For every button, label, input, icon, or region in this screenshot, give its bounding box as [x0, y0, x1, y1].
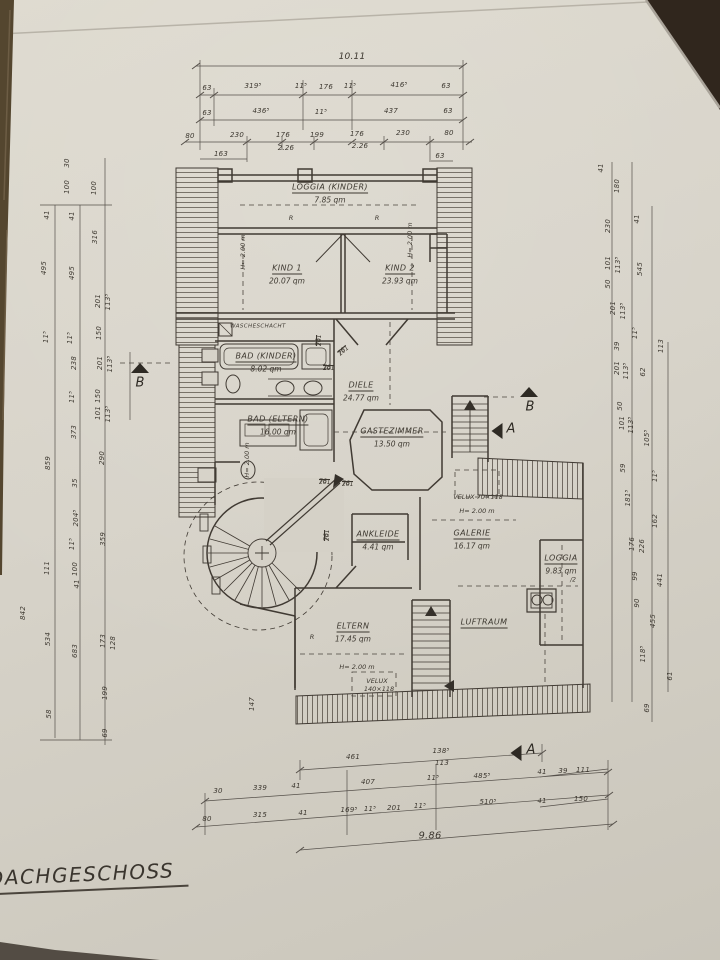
- dim-label: 534: [44, 632, 52, 646]
- dim-label: 201: [609, 301, 617, 315]
- screenshot-root: { "title": {"label": "DACHGESCHOSS"}, "p…: [0, 0, 720, 960]
- dim-label: 545: [636, 262, 644, 276]
- room-area: 8.02 qm: [250, 365, 281, 374]
- dim-label: 63: [441, 82, 450, 90]
- dim-label: 30: [213, 787, 222, 795]
- section-marker-label: A: [507, 422, 516, 437]
- dim-label: 407: [361, 778, 375, 786]
- annotation: H= 2.00 m: [239, 234, 247, 269]
- dim-label: 199: [101, 686, 109, 700]
- dim-label: 201: [387, 804, 401, 812]
- dim-label: 10.11: [339, 52, 366, 62]
- room-name: ANKLEIDE: [357, 530, 400, 541]
- dim-label: 11⁵: [651, 470, 659, 482]
- dim-label: 113⁵: [627, 417, 635, 434]
- dim-label: 319⁵: [245, 82, 262, 90]
- dim-label: 359: [99, 532, 107, 546]
- dim-label: 437: [384, 107, 398, 115]
- dim-label: 150: [95, 326, 103, 340]
- dim-label: 683: [71, 644, 79, 658]
- section-marker-arrow: [492, 423, 503, 439]
- dim-label: 41: [298, 809, 307, 817]
- room-name: BAD (KINDER): [235, 352, 296, 363]
- dim-label: 63: [202, 84, 211, 92]
- dim-label: 39: [613, 341, 621, 350]
- dim-label: 113: [435, 759, 449, 767]
- dim-label: 163: [214, 150, 228, 158]
- dim-label: 111: [43, 561, 51, 575]
- dim-label: 11⁵: [631, 327, 639, 339]
- dim-label: 2.26: [352, 142, 368, 150]
- dim-label: 101: [94, 406, 102, 420]
- dim-label: 101: [604, 256, 612, 270]
- dim-label: 11⁵: [315, 108, 327, 116]
- room-area: 20.07 qm: [269, 277, 305, 286]
- dim-label: 315: [253, 811, 267, 819]
- room-area: 9.83 qm: [545, 567, 576, 576]
- dim-label: 118⁵: [639, 646, 647, 663]
- dim-label: 113: [657, 339, 665, 353]
- dim-label: 105⁵: [643, 430, 651, 447]
- annotation: R: [310, 633, 315, 641]
- dim-label: 859: [44, 456, 52, 470]
- dim-label: 80: [202, 815, 211, 823]
- room-area: 23.93 qm: [382, 277, 418, 286]
- room-name: ELTERN: [337, 622, 370, 633]
- dim-label: 199: [310, 131, 324, 139]
- room-name: LOGGIA (KINDER): [292, 183, 368, 194]
- room-area: 7.85 qm: [314, 196, 345, 205]
- dim-label: 11⁵: [295, 82, 307, 90]
- dim-label: 181⁵: [624, 490, 632, 507]
- dim-label: 169⁵: [341, 806, 358, 814]
- dim-label: 176: [628, 537, 636, 551]
- dim-label: 11⁵: [414, 802, 426, 810]
- dim-label: 842: [19, 606, 27, 620]
- dim-label: 111: [576, 766, 590, 774]
- room-name: LUFTRAUM: [461, 618, 508, 629]
- annotation: H= 2.00 m: [243, 442, 251, 477]
- dim-label: 201: [613, 361, 621, 375]
- room-name: GALERIE: [454, 529, 491, 540]
- dim-label: 41: [291, 782, 300, 790]
- dim-label: 39: [558, 767, 567, 775]
- dim-label: 316: [91, 230, 99, 244]
- room-name: LOGGIA: [544, 554, 577, 565]
- dim-label: 162: [651, 514, 659, 528]
- dim-label: 176: [276, 131, 290, 139]
- section-marker-label: B: [526, 400, 535, 415]
- dim-label: 416⁵: [391, 81, 408, 89]
- dim-label: 495: [68, 266, 76, 280]
- dim-label: 230: [604, 219, 612, 233]
- dim-label: 41: [68, 211, 76, 220]
- dim-label: 436⁵: [253, 107, 270, 115]
- dim-label: 150: [574, 795, 588, 803]
- dim-label: 113⁵: [614, 257, 622, 274]
- dim-label: 100: [71, 562, 79, 576]
- room-area: 16.17 qm: [454, 542, 490, 551]
- dim-label: 63: [435, 152, 444, 160]
- dim-label: 201: [96, 356, 104, 370]
- dim-label: 11⁵: [344, 82, 356, 90]
- dim-label: 11⁵: [66, 332, 74, 344]
- annotation: R: [289, 214, 294, 222]
- dim-label: 461: [346, 753, 360, 761]
- section-marker-arrow: [131, 363, 149, 373]
- dim-label: 41: [537, 768, 546, 776]
- dim-label: 226: [638, 539, 646, 553]
- dim-label: 41: [597, 163, 605, 172]
- dim-label: 80: [185, 132, 194, 140]
- dim-label: 100: [63, 180, 71, 194]
- annotation: R: [375, 214, 380, 222]
- dim-label: 113⁵: [106, 356, 114, 373]
- dim-label: 100: [90, 181, 98, 195]
- room-name: GASTEZIMMER: [360, 427, 423, 438]
- room-name: KIND 2: [385, 264, 415, 275]
- dim-label: 339: [253, 784, 267, 792]
- dim-label: 90: [633, 598, 641, 607]
- room-area: 16.00 qm: [260, 428, 296, 437]
- dim-label: 180: [613, 179, 621, 193]
- room-name: WASCHESCHACHT: [230, 324, 286, 331]
- dim-label: 138⁵: [433, 747, 450, 755]
- dim-label: 2.26: [278, 144, 294, 152]
- dim-label: 50: [604, 279, 612, 288]
- dim-label: 113⁵: [104, 294, 112, 311]
- dim-label: 101: [618, 416, 626, 430]
- dim-label: 11⁵: [427, 774, 439, 782]
- dim-label: 230: [230, 131, 244, 139]
- dim-label: 128: [109, 636, 117, 650]
- dim-label: 510⁵: [480, 798, 497, 806]
- room-name: DIELE: [348, 381, 373, 392]
- dim-label: 201: [94, 294, 102, 308]
- dim-label: 373: [70, 425, 78, 439]
- section-marker-label: A: [527, 743, 536, 758]
- annotation: H= 2.00 m: [459, 507, 494, 515]
- section-marker-arrow: [511, 745, 522, 761]
- dim-label: 495: [40, 261, 48, 275]
- dim-label: 113⁵: [619, 303, 627, 320]
- dim-label: 485⁵: [474, 772, 491, 780]
- dim-label: 58: [45, 709, 53, 718]
- annotation: H= 2.00 m: [406, 222, 414, 257]
- dim-label: 80: [444, 129, 453, 137]
- dim-label: 176: [350, 130, 364, 138]
- dim-label: 173: [99, 634, 107, 648]
- annotation: VELUX 70×118: [453, 493, 503, 501]
- dim-label: 41: [73, 579, 81, 588]
- dim-label: 50: [616, 401, 624, 410]
- dim-label: 455: [649, 614, 657, 628]
- dim-label: 59: [619, 463, 627, 472]
- dim-label: 11⁵: [364, 805, 376, 813]
- dim-label: 61: [666, 671, 674, 680]
- dim-label: 204⁵: [72, 510, 80, 527]
- dim-label: 11⁵: [68, 538, 76, 550]
- annotation: 140×118: [364, 685, 394, 693]
- dim-label: 113⁵: [104, 406, 112, 423]
- dim-label: 9.86: [418, 831, 441, 842]
- dim-label: 176: [319, 83, 333, 91]
- dim-label: 11⁵: [42, 331, 50, 343]
- room-area: 17.45 qm: [335, 635, 371, 644]
- dim-label: 41: [633, 214, 641, 223]
- dim-label: 63: [443, 107, 452, 115]
- dim-label: 41: [537, 797, 546, 805]
- dim-label: 150: [94, 389, 102, 403]
- dim-label: 11⁵: [68, 391, 76, 403]
- dim-label: 41: [43, 210, 51, 219]
- room-name: BAD (ELTERN): [247, 415, 308, 426]
- dim-label: 69: [101, 728, 109, 737]
- label-layer: 10.1163319⁵11⁵17611⁵416⁵6363436⁵11⁵43763…: [0, 0, 720, 960]
- room-area: 4.41 qm: [362, 543, 393, 552]
- dim-label: 69: [643, 703, 651, 712]
- dim-label: 230: [396, 129, 410, 137]
- dim-label: 30: [63, 158, 71, 167]
- dim-label: 99: [631, 571, 639, 580]
- room-area: 24.77 qm: [343, 394, 379, 403]
- dim-label: 147: [248, 697, 256, 711]
- section-marker-arrow: [520, 387, 538, 397]
- room-name: KIND 1: [272, 264, 302, 275]
- room-area: 13.50 qm: [374, 440, 410, 449]
- dim-label: 35: [71, 478, 79, 487]
- annotation: H= 2.00 m: [339, 663, 374, 671]
- section-marker-label: B: [136, 376, 145, 391]
- dim-label: 238: [70, 356, 78, 370]
- photo-background: 10.1163319⁵11⁵17611⁵416⁵6363436⁵11⁵43763…: [0, 0, 720, 960]
- annotation: VELUX: [366, 677, 387, 685]
- dim-label: 113⁵: [622, 363, 630, 380]
- dim-label: 441: [656, 573, 664, 587]
- dim-label: 62: [639, 367, 647, 376]
- dim-label: 290: [98, 451, 106, 465]
- room-area-suffix: /2: [570, 577, 576, 584]
- dim-label: 63: [202, 109, 211, 117]
